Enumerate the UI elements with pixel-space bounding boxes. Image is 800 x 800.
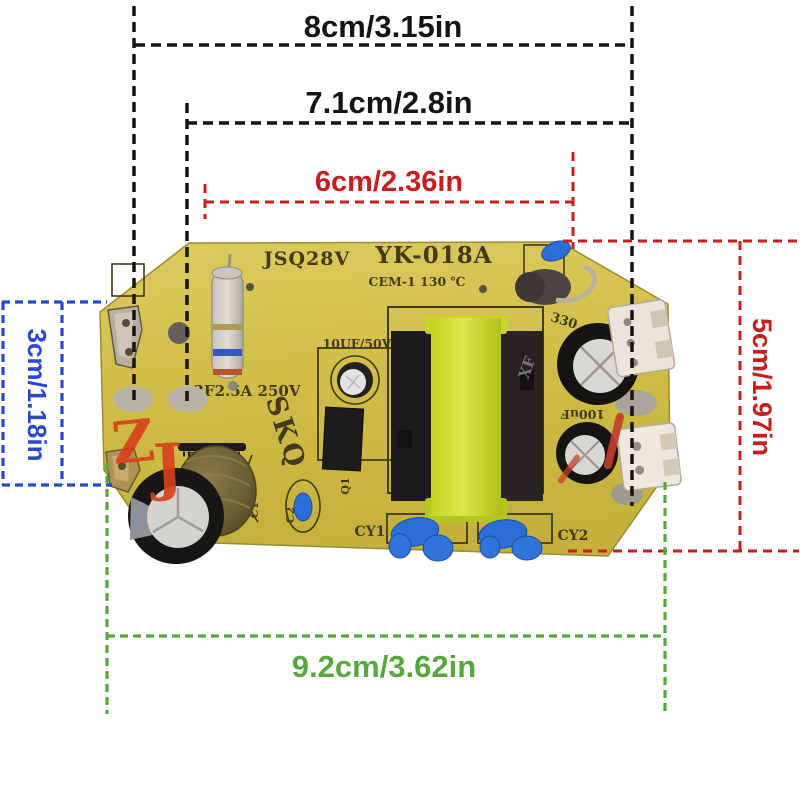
band-blue — [213, 349, 242, 356]
ceramic-cap-c2 — [294, 493, 312, 521]
photo-svg: JSQ28V YK-018A CEM-1 130 ℃ 3F2.5A 250V S… — [0, 0, 800, 800]
dim-width-top-label: 8cm/3.15in — [304, 9, 463, 44]
silkscreen-cy1-label: CY1 — [355, 524, 386, 540]
silkscreen-material-rating: CEM-1 130 ℃ — [369, 274, 466, 289]
via-hole — [479, 285, 487, 293]
product-photo: JSQ28V YK-018A CEM-1 130 ℃ 3F2.5A 250V S… — [0, 0, 800, 800]
silkscreen-code-left: JSQ28V — [262, 248, 351, 270]
silkscreen-q1-label: Q1 — [339, 477, 352, 494]
transistor-q1 — [322, 407, 363, 471]
fuse-resistor — [212, 254, 243, 391]
dim-height-left: 3cm/1.18in — [2, 302, 112, 485]
silkscreen-cy2-label: CY2 — [558, 528, 589, 544]
dim-width-mid-label: 7.1cm/2.8in — [305, 85, 472, 120]
band-gold — [213, 324, 242, 330]
band-red — [213, 369, 242, 375]
watermark-z: Z — [109, 406, 158, 478]
connector-2pin — [617, 423, 682, 492]
dim-width-bottom-label: 9.2cm/3.62in — [292, 649, 476, 684]
bobbin-strip — [431, 318, 501, 516]
silkscreen-cap-rating: 10UF/50V — [323, 336, 392, 351]
dim-width-inner: 6cm/2.36in — [205, 152, 573, 249]
connector-3pin — [607, 299, 675, 377]
capacitor-10uf — [337, 362, 373, 398]
dim-width-inner-label: 6cm/2.36in — [315, 166, 463, 198]
via-hole — [246, 283, 254, 291]
silkscreen-model: YK-018A — [374, 242, 492, 269]
silkscreen-cap100uf-label: 100uF — [561, 407, 605, 422]
dim-height-left-label: 3cm/1.18in — [22, 329, 52, 462]
dim-height-right-label: 5cm/1.97in — [747, 318, 777, 456]
transformer: XF — [391, 316, 543, 522]
